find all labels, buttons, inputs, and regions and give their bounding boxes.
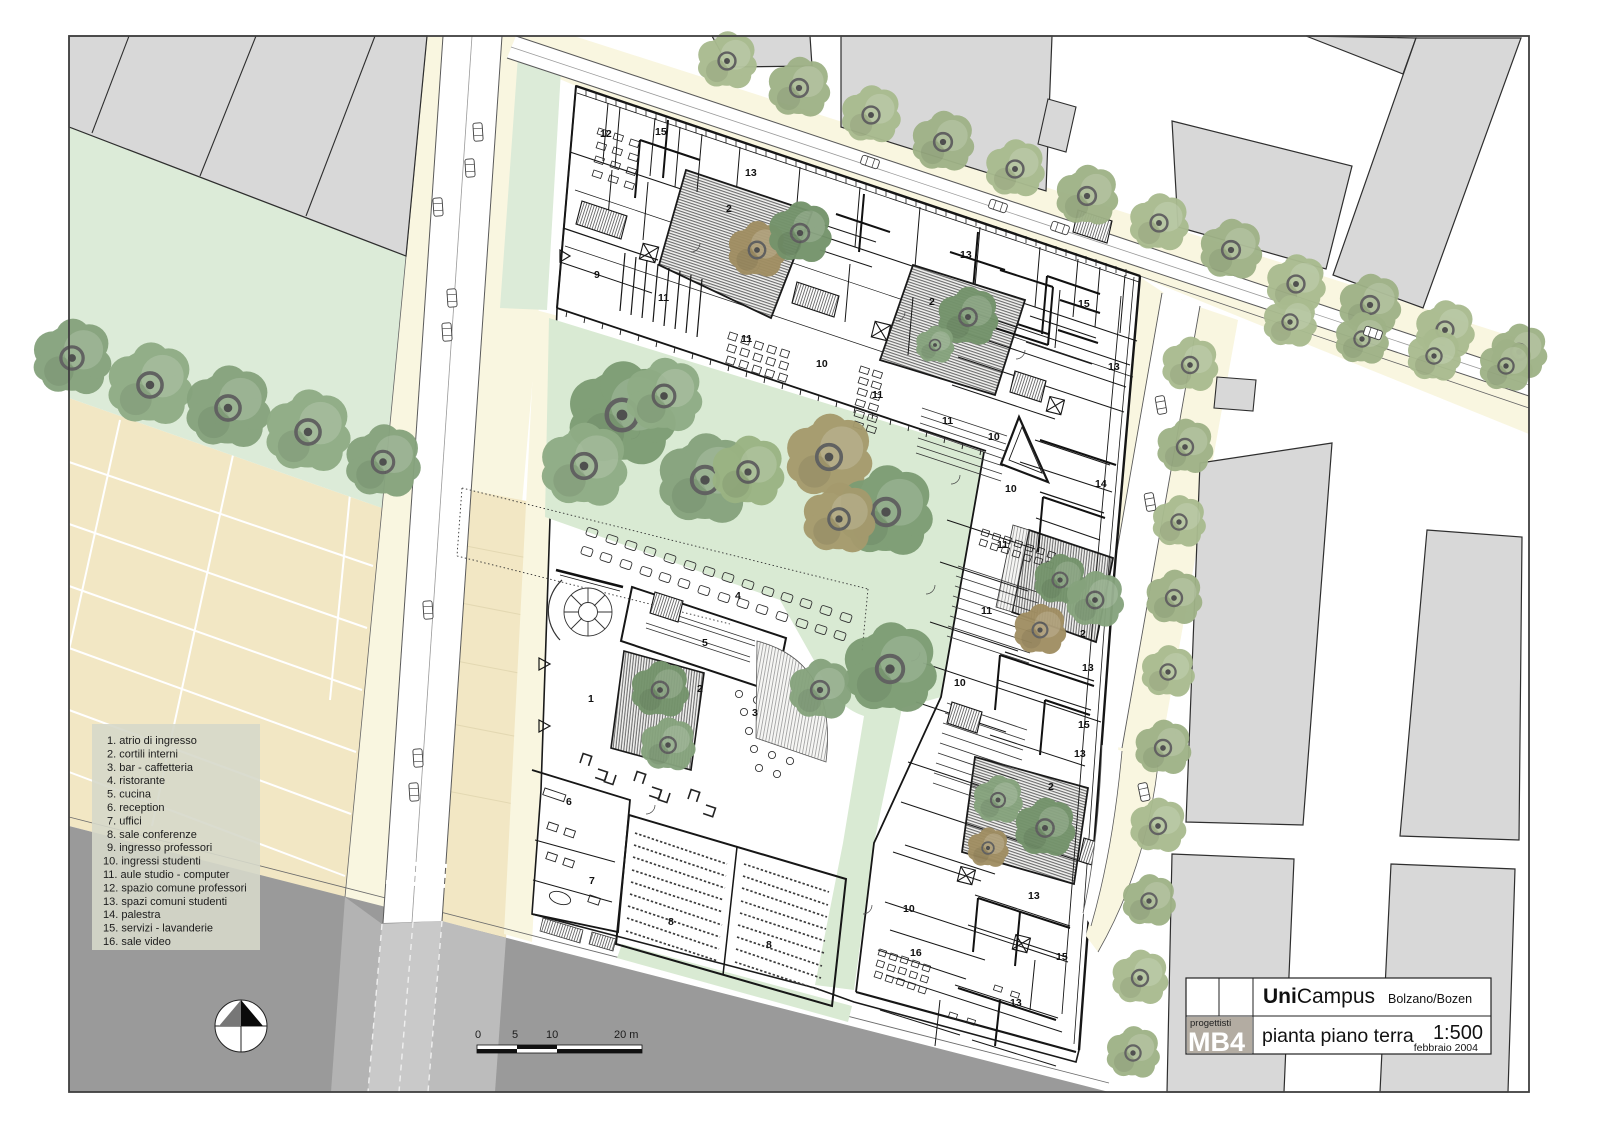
svg-text:10. ingressi studenti: 10. ingressi studenti: [103, 856, 201, 868]
svg-text:11: 11: [741, 333, 752, 345]
svg-text:10: 10: [903, 903, 915, 915]
svg-text:10: 10: [1005, 483, 1017, 495]
svg-text:11: 11: [942, 415, 953, 427]
svg-text:MB4: MB4: [1188, 1027, 1245, 1057]
svg-text:Bolzano/Bozen: Bolzano/Bozen: [1388, 992, 1472, 1006]
svg-text:11: 11: [997, 539, 1008, 551]
svg-text:20 m: 20 m: [614, 1029, 638, 1041]
svg-text:6: 6: [566, 796, 572, 808]
svg-text:3. bar - caffetteria: 3. bar - caffetteria: [107, 762, 194, 774]
svg-text:4. ristorante: 4. ristorante: [107, 775, 165, 787]
svg-text:16: 16: [910, 947, 922, 959]
svg-text:5: 5: [512, 1029, 518, 1041]
svg-text:UniCampus: UniCampus: [1263, 985, 1375, 1008]
svg-text:7: 7: [589, 875, 595, 887]
svg-text:12: 12: [600, 128, 612, 140]
svg-text:3: 3: [752, 707, 758, 719]
svg-text:15: 15: [1078, 719, 1090, 731]
svg-text:7. uffici: 7. uffici: [107, 815, 142, 827]
svg-text:1: 1: [588, 693, 594, 705]
svg-text:11: 11: [872, 389, 883, 401]
svg-text:8: 8: [766, 939, 772, 951]
svg-text:15. servizi - lavanderie: 15. servizi - lavanderie: [103, 923, 213, 935]
svg-text:10: 10: [954, 677, 966, 689]
svg-text:febbraio 2004: febbraio 2004: [1414, 1042, 1478, 1054]
svg-text:2: 2: [1080, 628, 1086, 640]
svg-text:10: 10: [988, 431, 1000, 443]
svg-text:2: 2: [929, 296, 935, 308]
svg-text:11: 11: [658, 292, 669, 304]
svg-text:13: 13: [960, 249, 972, 261]
svg-text:2: 2: [697, 683, 703, 695]
svg-text:1. atrio di ingresso: 1. atrio di ingresso: [107, 735, 197, 747]
svg-text:5: 5: [702, 637, 708, 649]
svg-text:8. sale conferenze: 8. sale conferenze: [107, 829, 197, 841]
svg-text:15: 15: [1078, 298, 1090, 310]
svg-text:2: 2: [726, 203, 732, 215]
svg-text:13: 13: [1074, 748, 1086, 760]
svg-text:15: 15: [655, 126, 667, 138]
svg-text:pianta piano terra: pianta piano terra: [1262, 1025, 1414, 1047]
svg-text:1:500: 1:500: [1433, 1022, 1483, 1044]
svg-text:4: 4: [735, 590, 741, 602]
svg-text:11. aule studio - computer: 11. aule studio - computer: [103, 869, 230, 881]
svg-text:5. cucina: 5. cucina: [107, 789, 152, 801]
svg-text:14. palestra: 14. palestra: [103, 909, 161, 921]
svg-text:13: 13: [1082, 662, 1094, 674]
svg-text:13: 13: [1010, 997, 1022, 1009]
svg-text:0: 0: [475, 1029, 481, 1041]
svg-text:2: 2: [1048, 781, 1054, 793]
svg-text:16. sale video: 16. sale video: [103, 936, 171, 948]
svg-text:2. cortili interni: 2. cortili interni: [107, 748, 178, 760]
svg-text:9: 9: [594, 269, 600, 281]
svg-text:15: 15: [1056, 951, 1068, 963]
svg-text:13. spazi comuni studenti: 13. spazi comuni studenti: [103, 896, 227, 908]
svg-text:8: 8: [668, 916, 674, 928]
svg-text:10: 10: [816, 358, 828, 370]
svg-text:14: 14: [1095, 478, 1107, 490]
svg-text:13: 13: [1028, 890, 1040, 902]
svg-text:11: 11: [981, 605, 992, 617]
svg-text:6. reception: 6. reception: [107, 802, 164, 814]
svg-text:13: 13: [1108, 361, 1120, 373]
svg-text:9. ingresso professori: 9. ingresso professori: [107, 842, 212, 854]
svg-text:12. spazio comune professori: 12. spazio comune professori: [103, 882, 247, 894]
svg-text:13: 13: [745, 167, 757, 179]
svg-text:10: 10: [546, 1029, 558, 1041]
